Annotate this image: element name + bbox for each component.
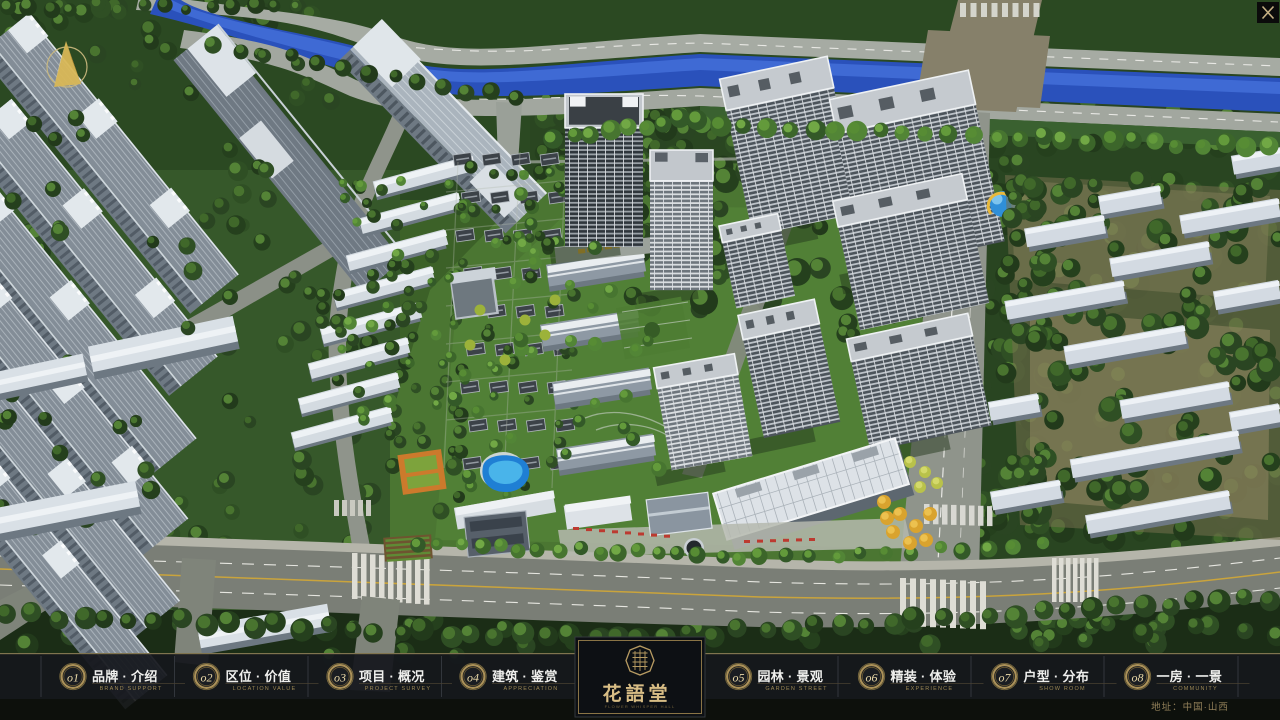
svg-text:o7: o7 [999,671,1012,685]
svg-text:o1: o1 [67,671,79,685]
svg-text:LOCATION VALUE: LOCATION VALUE [233,686,297,692]
svg-text:o4: o4 [467,671,479,685]
svg-text:区位 · 价值: 区位 · 价值 [226,669,292,684]
svg-text:o3: o3 [334,671,346,685]
svg-text:BRAND SUPPORT: BRAND SUPPORT [100,686,163,692]
svg-text:花語堂: 花語堂 [602,682,671,705]
svg-text:SHOW ROOM: SHOW ROOM [1039,686,1086,692]
svg-text:建筑 · 鉴赏: 建筑 · 鉴赏 [492,669,558,684]
svg-text:地址：中国·山西: 地址：中国·山西 [1151,701,1229,713]
svg-text:项目 · 概况: 项目 · 概况 [359,669,425,684]
svg-text:PROJECT SURVEY: PROJECT SURVEY [365,686,431,692]
svg-text:精装 · 体验: 精装 · 体验 [891,669,957,684]
svg-text:APPRECIATION: APPRECIATION [504,686,559,692]
svg-text:一房 · 一景: 一房 · 一景 [1157,669,1223,684]
svg-text:o8: o8 [1132,671,1144,685]
svg-text:COMMUNITY: COMMUNITY [1173,686,1218,692]
svg-text:品牌 · 介绍: 品牌 · 介绍 [92,669,158,684]
svg-text:EXPERIENCE: EXPERIENCE [906,686,953,692]
svg-text:户型 · 分布: 户型 · 分布 [1024,669,1090,684]
svg-text:o6: o6 [866,671,878,685]
svg-text:GARDEN STREET: GARDEN STREET [765,686,827,692]
svg-text:o2: o2 [201,671,213,685]
svg-text:园林 · 景观: 园林 · 景观 [758,669,824,684]
svg-text:FLOWER WHISPER HALL: FLOWER WHISPER HALL [605,704,676,709]
svg-text:o5: o5 [733,671,745,685]
